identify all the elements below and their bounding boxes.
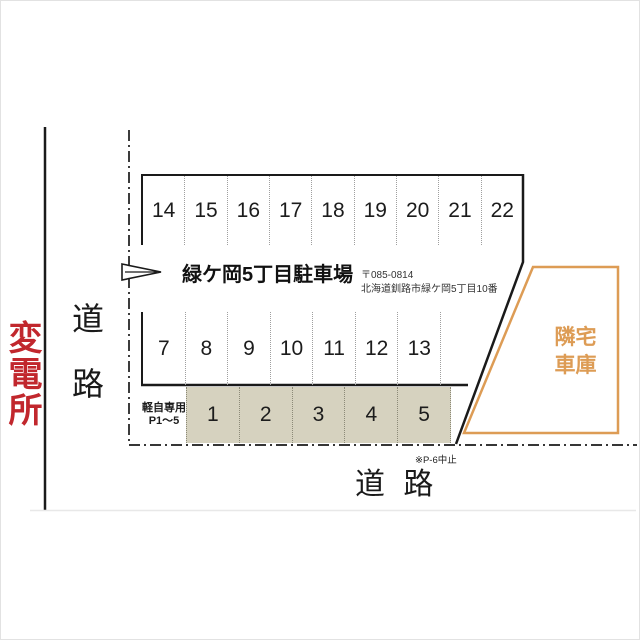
light-car-stalls: 12345	[186, 387, 451, 443]
parking-space-16: 16	[228, 176, 270, 245]
parking-space-10: 10	[271, 312, 314, 385]
parking-space-20: 20	[397, 176, 439, 245]
parking-space-18: 18	[312, 176, 354, 245]
road-left-label: 道路	[70, 302, 102, 432]
neighbor-garage-label-line2: 車庫	[533, 352, 618, 380]
light-car-label-line2: P1〜5	[149, 415, 180, 428]
parking-space-7: 7	[143, 312, 186, 385]
parking-space-4: 4	[344, 387, 397, 443]
parking-space-14: 14	[143, 176, 185, 245]
substation-label: 変電所	[5, 320, 39, 428]
parking-space-13: 13	[398, 312, 441, 385]
parking-space-2: 2	[239, 387, 292, 443]
parking-space-5: 5	[397, 387, 451, 443]
parking-space-21: 21	[439, 176, 481, 245]
lot-address: 北海道釧路市緑ケ岡5丁目10番	[361, 280, 498, 295]
light-car-label-line1: 軽自専用	[142, 402, 186, 415]
parking-space-3: 3	[292, 387, 345, 443]
neighbor-garage-label-line1: 隣宅	[533, 324, 618, 352]
parking-space-12: 12	[356, 312, 399, 385]
parking-row-middle: 78910111213	[141, 312, 441, 385]
road-bottom-label: 道 路	[355, 470, 438, 500]
parking-space-17: 17	[270, 176, 312, 245]
parking-space-9: 9	[228, 312, 271, 385]
lot-title: 緑ケ岡5丁目駐車場	[182, 258, 353, 287]
parking-space-22: 22	[482, 176, 523, 245]
parking-lot-map: 変電所 道路 141516171819202122 緑ケ岡5丁目駐車場 〒085…	[0, 0, 640, 640]
parking-row-light-car: 軽自専用 P1〜5 12345	[142, 387, 451, 443]
parking-space-8: 8	[186, 312, 229, 385]
p6-cancelled-note: ※P-6中止	[415, 452, 457, 466]
lot-postal-code: 〒085-0814	[361, 266, 413, 281]
neighbor-garage-label: 隣宅 車庫	[533, 324, 618, 380]
parking-space-19: 19	[355, 176, 397, 245]
parking-space-1: 1	[186, 387, 239, 443]
light-car-only-label: 軽自専用 P1〜5	[142, 387, 186, 443]
parking-space-11: 11	[313, 312, 356, 385]
parking-row-top: 141516171819202122	[141, 174, 523, 245]
parking-space-15: 15	[185, 176, 227, 245]
